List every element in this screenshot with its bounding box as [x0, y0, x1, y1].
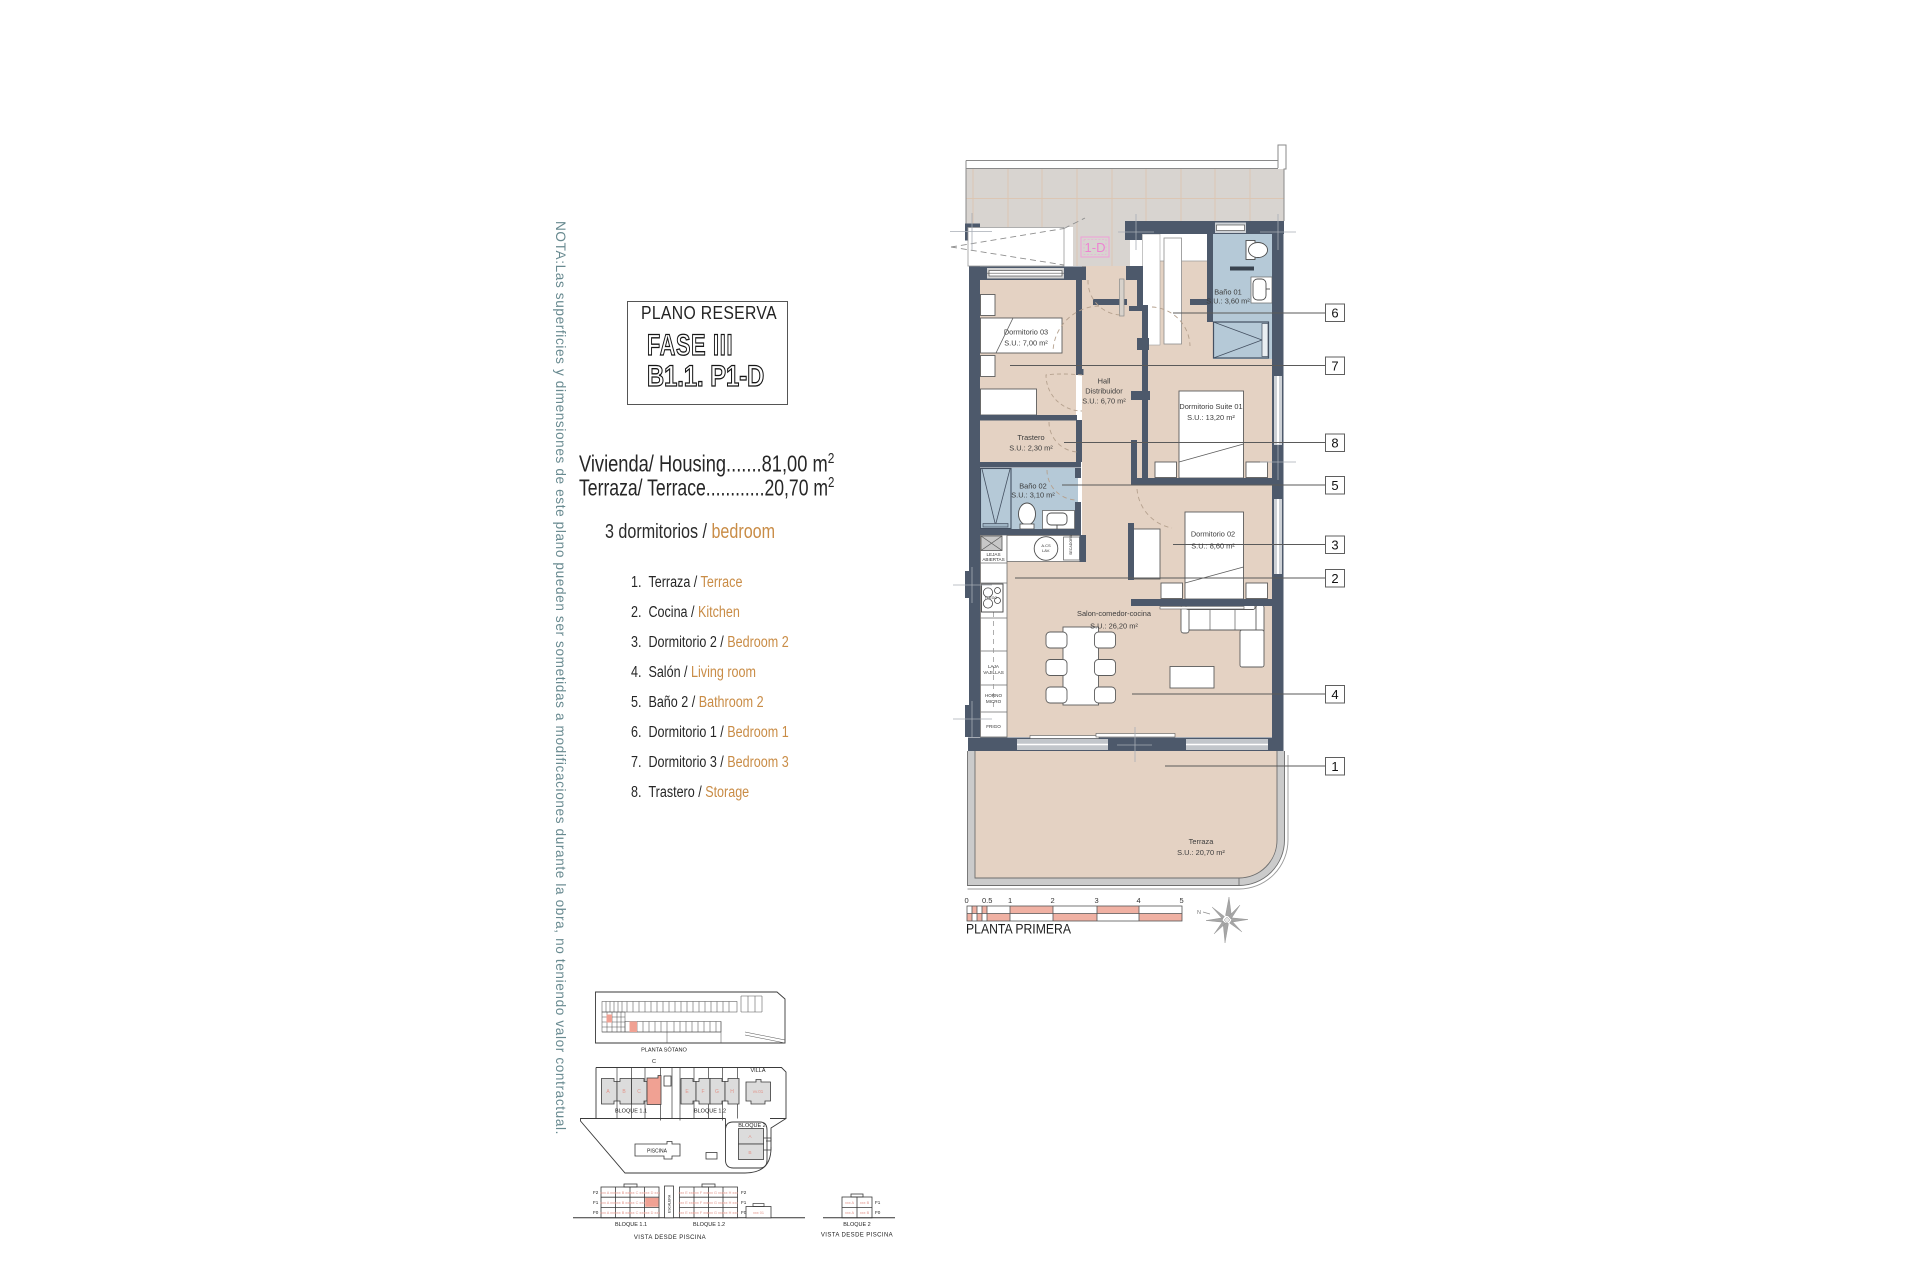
svg-text:ESCALERA: ESCALERA	[668, 1194, 672, 1213]
svg-text:VAJILLAS: VAJILLAS	[983, 670, 1004, 675]
svg-text:F2: F2	[741, 1190, 747, 1195]
svg-text:xxx D xxx: xxx D xxx	[644, 1211, 660, 1215]
svg-text:PISCINA: PISCINA	[647, 1149, 668, 1155]
svg-text:xxx D xxx: xxx D xxx	[644, 1191, 660, 1195]
svg-text:BLOQUE 1.2: BLOQUE 1.2	[693, 1222, 725, 1228]
svg-text:Distribuidor: Distribuidor	[1085, 387, 1123, 396]
svg-text:Baño 02: Baño 02	[1019, 482, 1047, 491]
svg-text:PLANTA PRIMERA: PLANTA PRIMERA	[966, 921, 1072, 937]
svg-text:C: C	[652, 1059, 656, 1065]
svg-text:MICRO: MICRO	[986, 699, 1002, 704]
svg-text:S.U.: 13,20 m²: S.U.: 13,20 m²	[1187, 413, 1235, 422]
svg-text:BLOQUE 2: BLOQUE 2	[738, 1123, 766, 1129]
svg-text:F0: F0	[875, 1210, 881, 1215]
svg-text:2: 2	[1331, 571, 1338, 586]
svg-text:5: 5	[1180, 896, 1184, 905]
svg-text:FRIGO: FRIGO	[986, 724, 1001, 729]
svg-text:G: G	[715, 1089, 719, 1095]
svg-text:S.U.: 26,20 m²: S.U.: 26,20 m²	[1090, 622, 1138, 631]
svg-text:1: 1	[1331, 759, 1338, 774]
svg-text:VILLA: VILLA	[751, 1068, 766, 1074]
svg-text:8: 8	[1331, 436, 1338, 451]
svg-text:BLOQUE 1.1: BLOQUE 1.1	[615, 1109, 647, 1115]
svg-text:HORNO: HORNO	[985, 693, 1003, 698]
svg-text:S.U.: 20,70 m²: S.U.: 20,70 m²	[1177, 848, 1225, 857]
svg-text:Salon-comedor-cocina: Salon-comedor-cocina	[1077, 609, 1152, 618]
svg-text:xxx H xxx: xxx H xxx	[722, 1211, 738, 1215]
svg-text:S.U.: 3,60 m²: S.U.: 3,60 m²	[1206, 297, 1250, 306]
svg-text:xxx A xxx: xxx A xxx	[600, 1201, 616, 1205]
svg-text:3: 3	[1331, 538, 1338, 553]
svg-text:7: 7	[1331, 359, 1338, 374]
svg-text:F: F	[701, 1089, 704, 1095]
svg-text:SECADORA: SECADORA	[1069, 534, 1073, 555]
svg-text:BLOQUE 1.1: BLOQUE 1.1	[615, 1222, 647, 1228]
svg-text:LAJA: LAJA	[988, 664, 1000, 669]
svg-text:Dormitorio 03: Dormitorio 03	[1004, 328, 1048, 337]
svg-text:xxx A xxx: xxx A xxx	[600, 1191, 616, 1195]
svg-text:Dormitorio 02: Dormitorio 02	[1191, 530, 1235, 539]
svg-text:xxx B: xxx B	[860, 1201, 870, 1205]
svg-text:4: 4	[1331, 687, 1338, 702]
svg-text:H: H	[730, 1089, 734, 1095]
svg-text:BLOQUE 2: BLOQUE 2	[843, 1222, 871, 1228]
svg-text:6: 6	[1331, 306, 1338, 321]
svg-text:PLANTA SÓTANO: PLANTA SÓTANO	[641, 1047, 687, 1054]
svg-text:Trastero: Trastero	[1017, 433, 1044, 442]
svg-text:xxx C xxx: xxx C xxx	[629, 1191, 645, 1195]
svg-text:LAV.: LAV.	[1042, 548, 1050, 553]
svg-text:F0: F0	[593, 1210, 599, 1215]
svg-text:xxx H xxx: xxx H xxx	[722, 1191, 738, 1195]
svg-text:VISTA DESDE PISCINA: VISTA DESDE PISCINA	[821, 1233, 893, 1239]
svg-text:xxx 01: xxx 01	[753, 1211, 764, 1215]
svg-text:5: 5	[1331, 478, 1338, 493]
svg-text:xxx C xxx: xxx C xxx	[629, 1201, 645, 1205]
svg-text:FUEGO: FUEGO	[985, 596, 997, 600]
svg-text:Terraza: Terraza	[1189, 837, 1215, 846]
svg-text:1: 1	[1008, 896, 1012, 905]
svg-text:B: B	[748, 1150, 751, 1156]
svg-text:S.U.: 6,70 m²: S.U.: 6,70 m²	[1082, 397, 1126, 406]
svg-text:0: 0	[965, 896, 969, 905]
svg-text:S.U.: 2,30 m²: S.U.: 2,30 m²	[1009, 444, 1053, 453]
svg-text:xxx B: xxx B	[860, 1211, 870, 1215]
svg-text:vv.01: vv.01	[753, 1089, 764, 1094]
svg-text:S.U.: 8,60 m²: S.U.: 8,60 m²	[1191, 542, 1235, 551]
svg-text:F1: F1	[875, 1200, 881, 1205]
svg-text:Baño 01: Baño 01	[1214, 288, 1242, 297]
svg-text:S.U.: 7,00 m²: S.U.: 7,00 m²	[1004, 339, 1048, 348]
svg-text:F2: F2	[593, 1190, 599, 1195]
svg-text:xxx H xxx: xxx H xxx	[722, 1201, 738, 1205]
svg-text:S.U.: 3,10 m²: S.U.: 3,10 m²	[1011, 491, 1055, 500]
svg-text:F1: F1	[593, 1200, 599, 1205]
svg-text:VISTA DESDE PISCINA: VISTA DESDE PISCINA	[634, 1235, 706, 1241]
svg-text:BLOQUE 1.2: BLOQUE 1.2	[694, 1109, 726, 1115]
svg-text:xxx A: xxx A	[845, 1211, 855, 1215]
svg-text:xxx C xxx: xxx C xxx	[629, 1211, 645, 1215]
svg-text:ABIERTAS: ABIERTAS	[982, 557, 1004, 562]
svg-text:N: N	[1197, 910, 1201, 916]
svg-text:C: C	[637, 1089, 641, 1095]
svg-text:Hall: Hall	[1098, 377, 1111, 386]
svg-text:F1: F1	[741, 1200, 747, 1205]
svg-text:3: 3	[1095, 896, 1099, 905]
svg-text:1-D: 1-D	[1085, 240, 1106, 255]
svg-text:0.5: 0.5	[982, 896, 992, 905]
svg-text:Dormitorio Suite 01: Dormitorio Suite 01	[1179, 402, 1242, 411]
svg-text:xxx A: xxx A	[845, 1201, 855, 1205]
svg-text:xxx A xxx: xxx A xxx	[600, 1211, 616, 1215]
svg-text:2: 2	[1051, 896, 1055, 905]
svg-text:4: 4	[1137, 896, 1141, 905]
